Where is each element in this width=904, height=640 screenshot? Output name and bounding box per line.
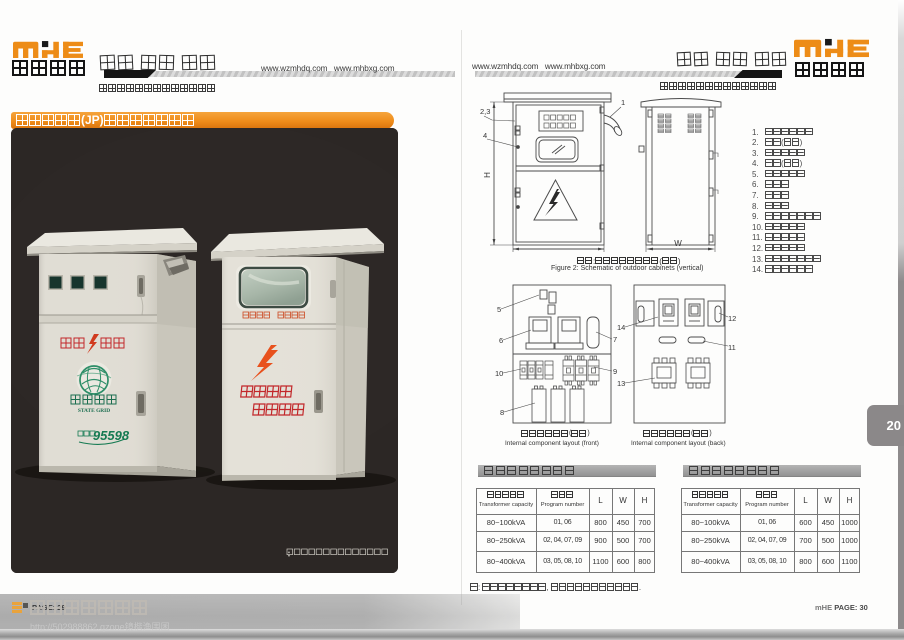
svg-text:2,3: 2,3 — [480, 107, 490, 116]
svg-text:8: 8 — [500, 408, 504, 417]
svg-text:4: 4 — [483, 131, 487, 140]
svg-text:6: 6 — [499, 336, 503, 345]
svg-text:W: W — [674, 239, 682, 248]
svg-text:H: H — [483, 172, 492, 178]
svg-text:9: 9 — [613, 367, 617, 376]
svg-text:7: 7 — [613, 335, 617, 344]
svg-text:13: 13 — [617, 379, 625, 388]
svg-text:5: 5 — [497, 305, 501, 314]
svg-text:10: 10 — [495, 369, 503, 378]
svg-text:11: 11 — [728, 343, 736, 352]
svg-text:14: 14 — [617, 323, 625, 332]
svg-text:12: 12 — [728, 314, 736, 323]
svg-text:STATE GRID: STATE GRID — [78, 408, 110, 414]
svg-text:1: 1 — [621, 98, 625, 107]
svg-text:95598: 95598 — [93, 428, 130, 443]
